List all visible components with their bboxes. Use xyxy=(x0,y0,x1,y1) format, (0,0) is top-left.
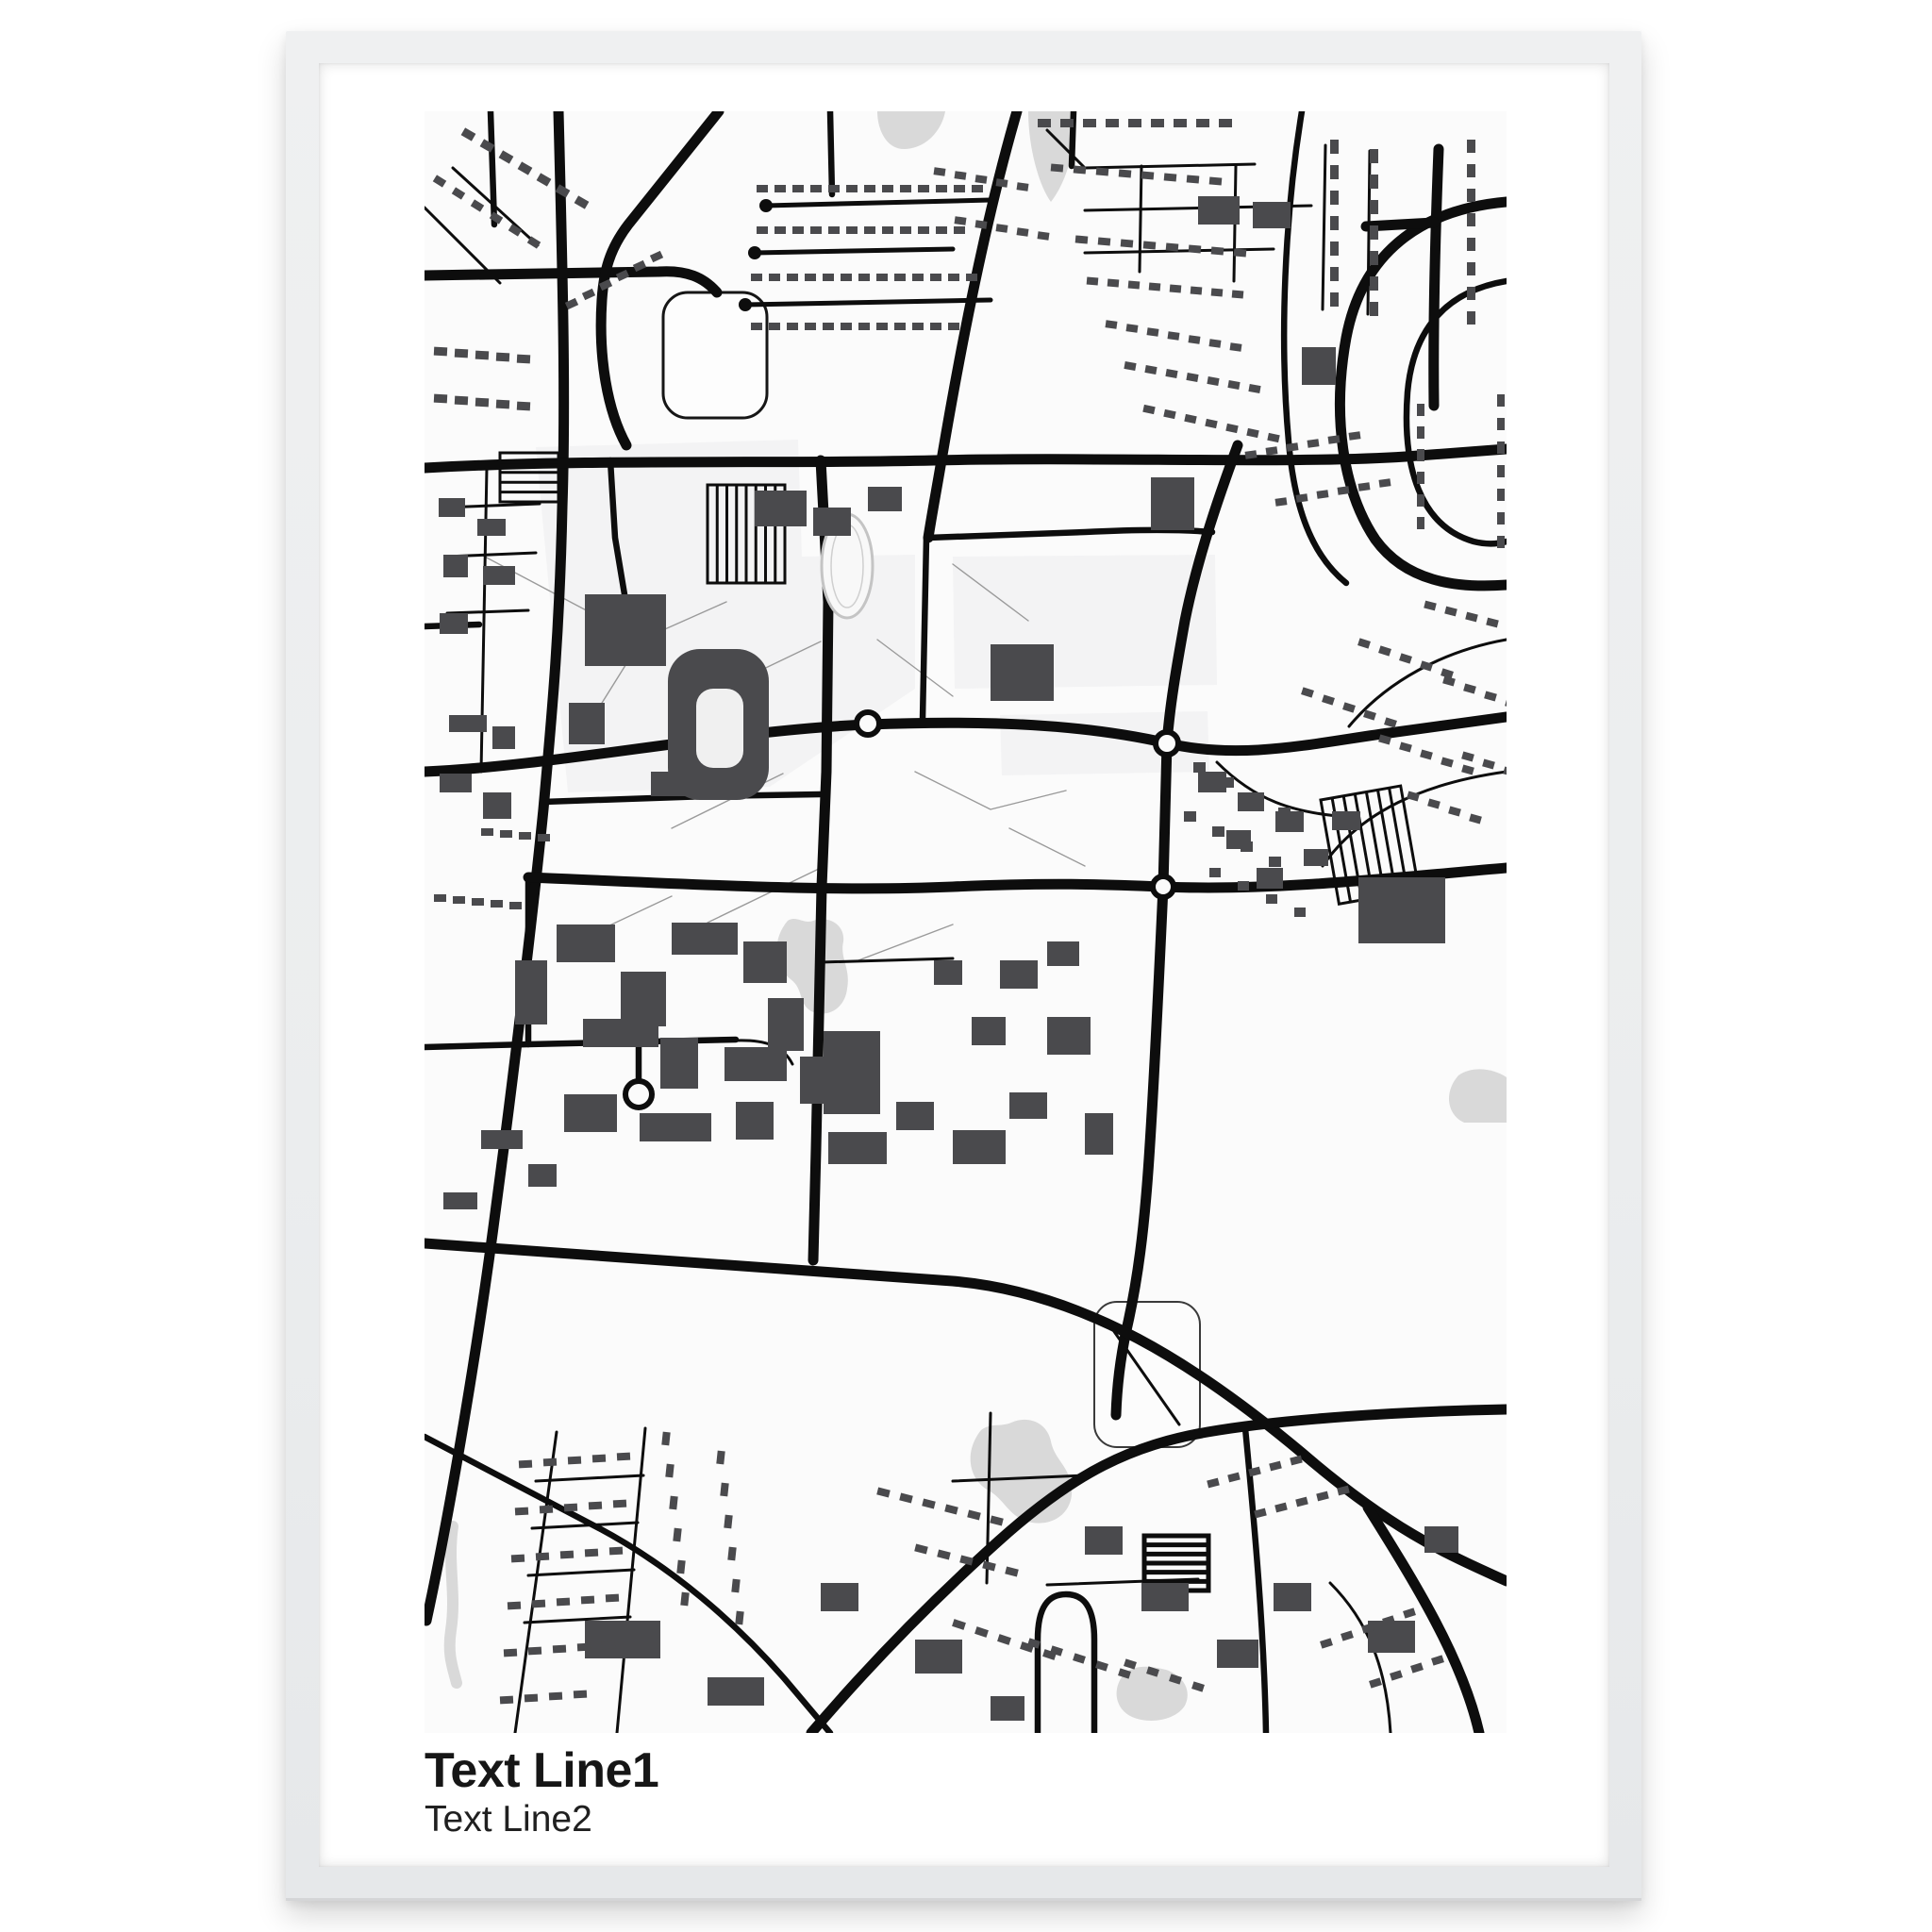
map-print-area xyxy=(425,111,1507,1733)
city-map-graphic xyxy=(425,111,1507,1733)
poster-frame: Text Line1 Text Line2 xyxy=(286,31,1641,1901)
poster-subtitle: Text Line2 xyxy=(425,1799,658,1840)
poster-mockup-scene: Text Line1 Text Line2 xyxy=(0,0,1932,1932)
poster-caption: Text Line1 Text Line2 xyxy=(425,1744,658,1840)
poster: Text Line1 Text Line2 xyxy=(319,63,1609,1867)
poster-title: Text Line1 xyxy=(425,1744,658,1797)
